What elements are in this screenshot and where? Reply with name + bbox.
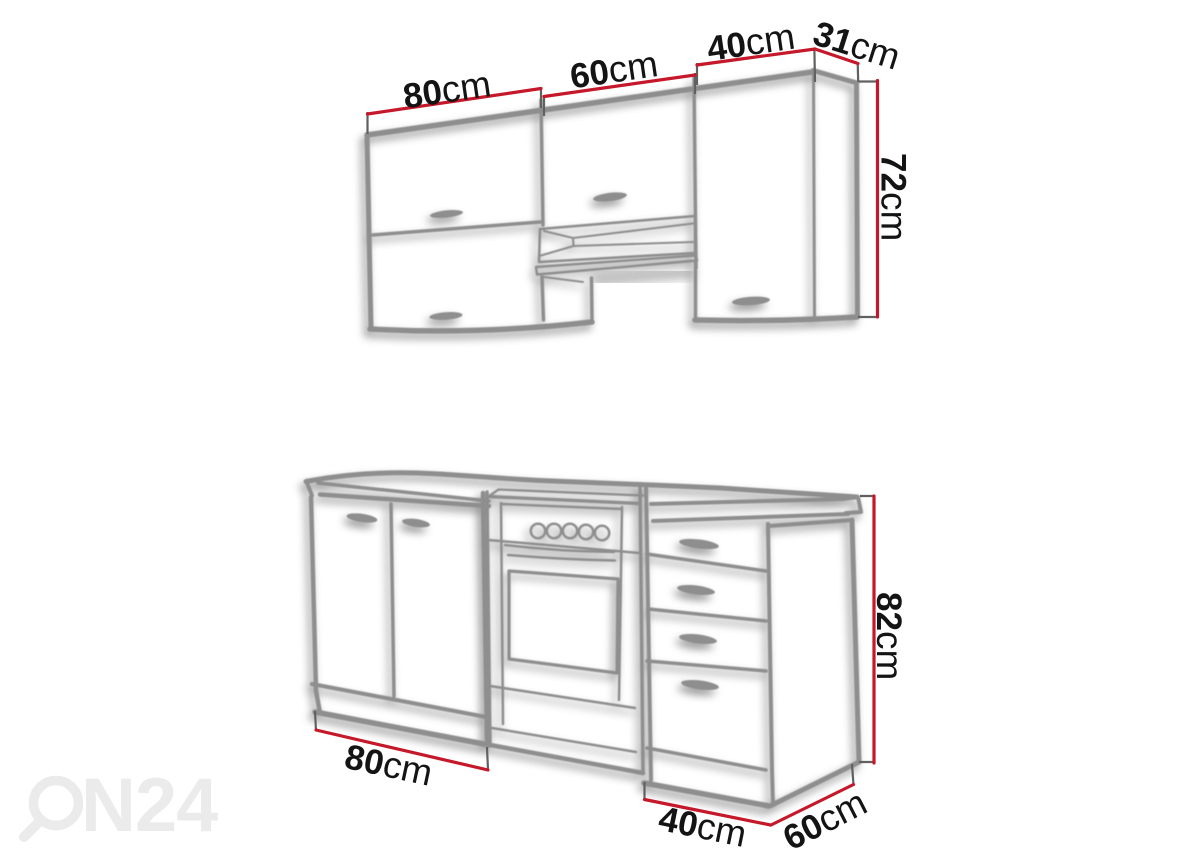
svg-text:N24: N24 bbox=[81, 763, 218, 848]
svg-text:82cm: 82cm bbox=[869, 592, 910, 680]
svg-text:72cm: 72cm bbox=[874, 153, 915, 241]
